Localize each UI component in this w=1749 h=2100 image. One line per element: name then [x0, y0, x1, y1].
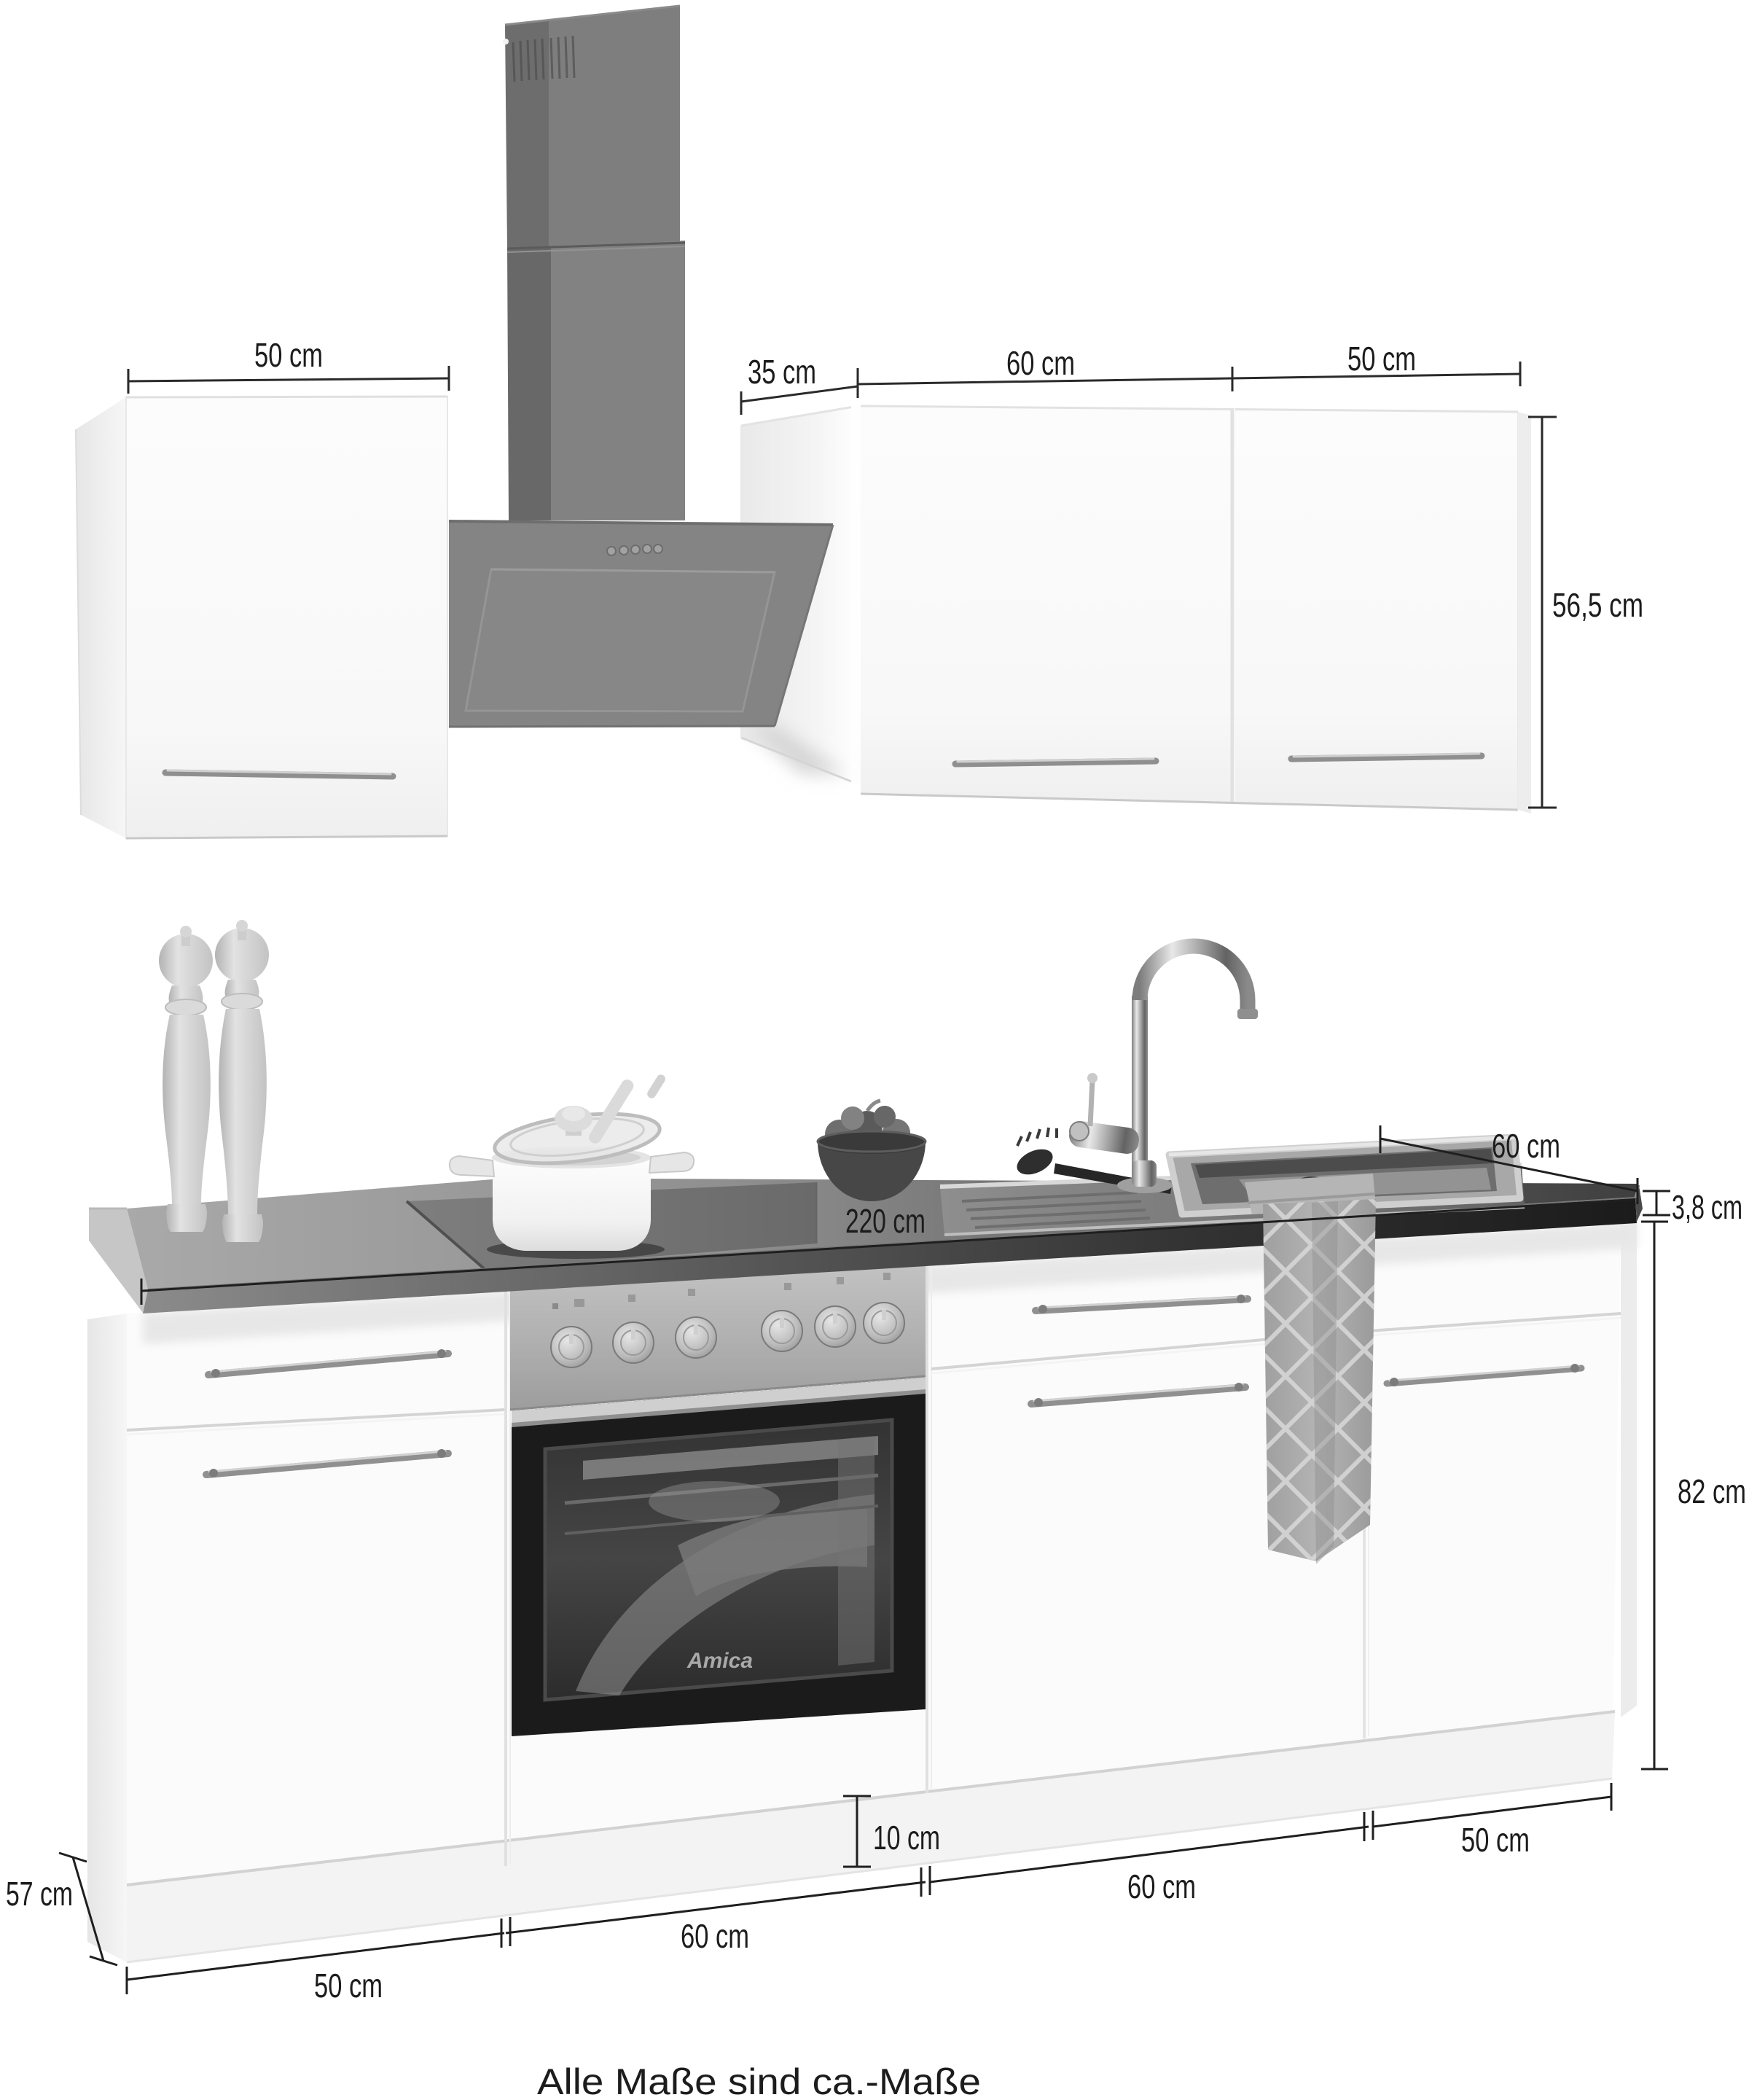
svg-text:60 cm: 60 cm [1492, 1127, 1560, 1165]
svg-text:35 cm: 35 cm [748, 353, 816, 391]
svg-text:Alle Maße sind ca.-Maße: Alle Maße sind ca.-Maße [537, 2061, 981, 2100]
svg-text:220 cm: 220 cm [845, 1202, 926, 1240]
svg-text:50 cm: 50 cm [254, 336, 323, 374]
svg-text:50 cm: 50 cm [1347, 340, 1416, 378]
svg-text:Amica: Amica [686, 1649, 753, 1673]
svg-text:50 cm: 50 cm [1461, 1821, 1530, 1859]
svg-text:60 cm: 60 cm [681, 1917, 749, 1955]
svg-text:56,5 cm: 56,5 cm [1552, 586, 1643, 624]
svg-text:82 cm: 82 cm [1678, 1472, 1746, 1510]
svg-text:60 cm: 60 cm [1127, 1867, 1196, 1905]
svg-text:50 cm: 50 cm [314, 1967, 383, 2005]
svg-text:3,8 cm: 3,8 cm [1672, 1188, 1742, 1226]
svg-text:60 cm: 60 cm [1006, 344, 1075, 382]
svg-text:10 cm: 10 cm [873, 1819, 940, 1857]
svg-text:57 cm: 57 cm [6, 1875, 73, 1913]
